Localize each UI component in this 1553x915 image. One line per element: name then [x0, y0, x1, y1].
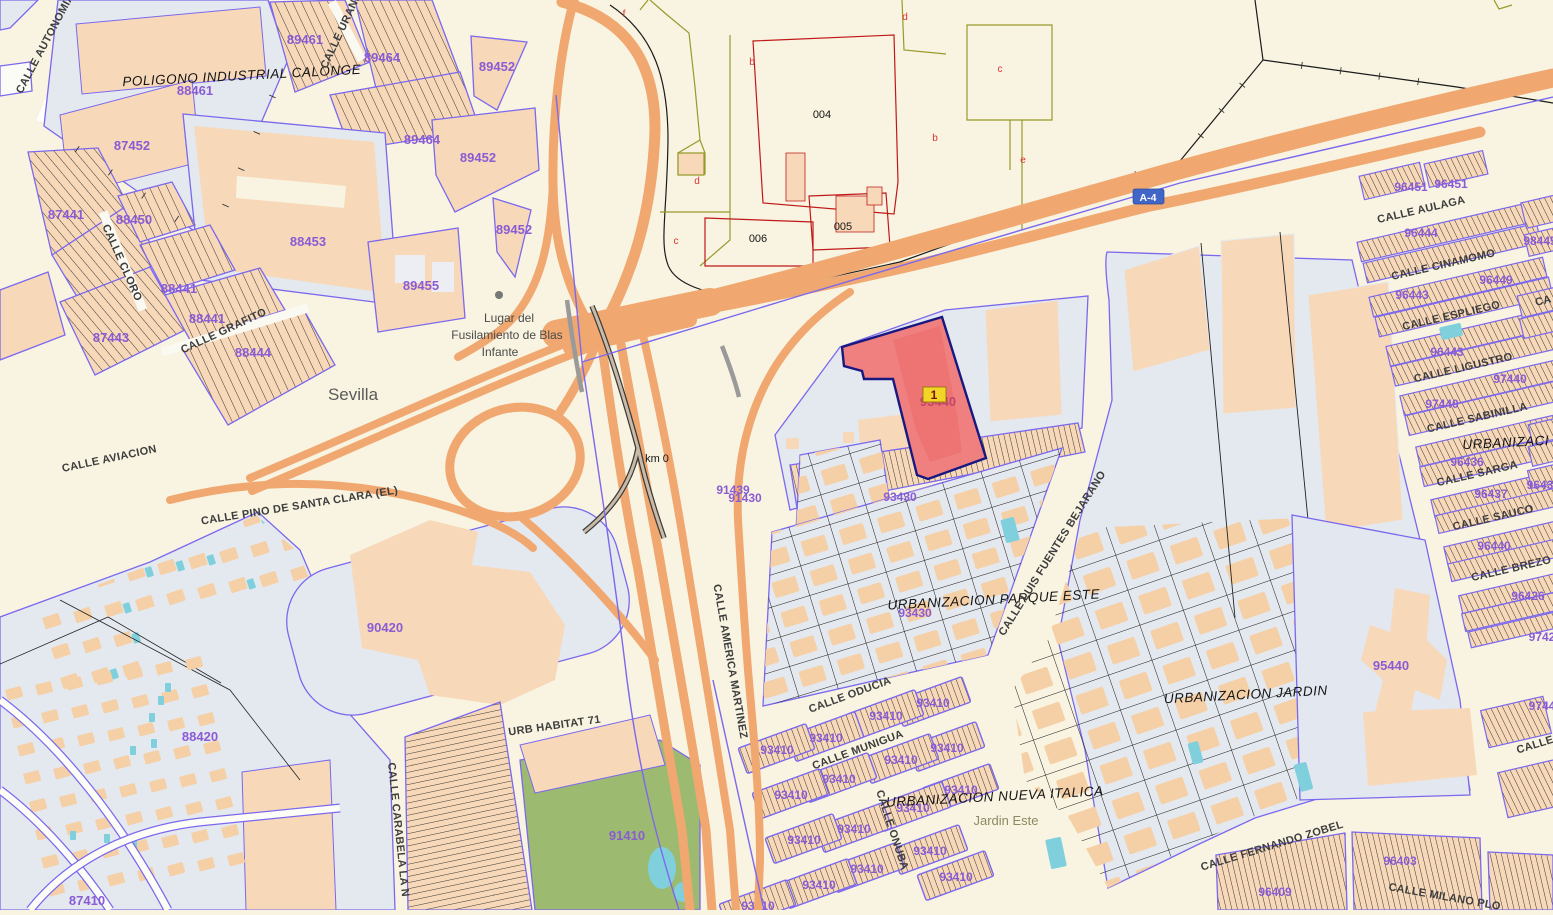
svg-text:91410: 91410 [609, 828, 645, 843]
svg-text:93410: 93410 [802, 878, 836, 892]
svg-text:93410: 93410 [837, 822, 871, 836]
svg-text:96440: 96440 [1477, 539, 1511, 553]
svg-text:96437: 96437 [1474, 487, 1508, 501]
svg-text:f: f [623, 9, 626, 20]
svg-text:88420: 88420 [182, 729, 218, 744]
svg-text:91430: 91430 [728, 491, 762, 505]
svg-text:97440: 97440 [1425, 397, 1459, 411]
svg-text:93410: 93410 [850, 862, 884, 876]
svg-text:e: e [1020, 155, 1026, 166]
svg-text:87441: 87441 [48, 207, 84, 222]
svg-text:Fusilamiento de Blas: Fusilamiento de Blas [451, 328, 562, 342]
svg-text:93410: 93410 [939, 870, 973, 884]
svg-text:Lugar del: Lugar del [484, 311, 534, 325]
svg-text:93410: 93410 [930, 741, 964, 755]
svg-text:93410: 93410 [916, 696, 950, 710]
svg-text:006: 006 [749, 233, 767, 245]
svg-text:005: 005 [834, 221, 852, 233]
svg-text:87443: 87443 [93, 330, 129, 345]
svg-text:Sevilla: Sevilla [328, 385, 379, 404]
svg-text:km 0: km 0 [645, 453, 669, 465]
svg-text:96409: 96409 [1258, 885, 1292, 899]
svg-text:87410: 87410 [69, 893, 105, 908]
svg-text:89455: 89455 [403, 278, 439, 293]
svg-text:c: c [998, 64, 1003, 75]
svg-text:93410: 93410 [822, 772, 856, 786]
svg-text:89461: 89461 [287, 32, 323, 47]
svg-text:89464: 89464 [364, 50, 401, 65]
svg-text:98445: 98445 [1523, 234, 1553, 248]
svg-text:89452: 89452 [496, 222, 532, 237]
svg-text:96449: 96449 [1479, 273, 1513, 287]
svg-text:Infante: Infante [482, 345, 519, 359]
svg-text:1: 1 [931, 388, 938, 402]
svg-text:88441: 88441 [161, 281, 197, 296]
svg-text:88453: 88453 [290, 234, 326, 249]
svg-text:97440: 97440 [1493, 372, 1527, 386]
svg-text:d: d [902, 12, 908, 23]
svg-text:A-4: A-4 [1140, 192, 1157, 204]
svg-text:89452: 89452 [479, 59, 515, 74]
svg-text:b: b [932, 133, 938, 144]
svg-text:c: c [674, 236, 679, 247]
svg-text:9742: 9742 [1529, 630, 1553, 644]
svg-text:88450: 88450 [116, 212, 152, 227]
svg-text:88461: 88461 [177, 83, 213, 98]
svg-text:89452: 89452 [460, 150, 496, 165]
svg-text:93410: 93410 [913, 844, 947, 858]
svg-text:004: 004 [813, 109, 831, 121]
svg-text:96403: 96403 [1383, 854, 1417, 868]
svg-text:88441: 88441 [189, 311, 225, 326]
svg-text:96426: 96426 [1511, 589, 1545, 603]
svg-text:93410: 93410 [760, 743, 794, 757]
svg-text:96443: 96443 [1430, 345, 1464, 359]
svg-text:96436: 96436 [1450, 455, 1484, 469]
svg-text:93410: 93410 [774, 788, 808, 802]
svg-text:93410: 93410 [884, 753, 918, 767]
svg-text:93410: 93410 [869, 709, 903, 723]
svg-text:b: b [749, 57, 755, 68]
svg-text:93430: 93430 [883, 490, 917, 504]
svg-text:9643: 9643 [1527, 478, 1553, 492]
svg-text:96443: 96443 [1395, 288, 1429, 302]
svg-text:90420: 90420 [367, 620, 403, 635]
svg-text:89464: 89464 [404, 132, 441, 147]
svg-text:96444: 96444 [1404, 226, 1438, 240]
svg-text:93410: 93410 [787, 833, 821, 847]
svg-text:9744: 9744 [1529, 699, 1553, 713]
svg-text:88444: 88444 [235, 345, 272, 360]
svg-text:96451: 96451 [1434, 177, 1468, 191]
svg-text:87452: 87452 [114, 138, 150, 153]
svg-text:96451: 96451 [1394, 180, 1428, 194]
svg-text:Jardin Este: Jardin Este [973, 813, 1038, 828]
svg-text:93410: 93410 [809, 731, 843, 745]
svg-text:d: d [694, 176, 700, 187]
svg-text:95440: 95440 [1373, 658, 1409, 673]
